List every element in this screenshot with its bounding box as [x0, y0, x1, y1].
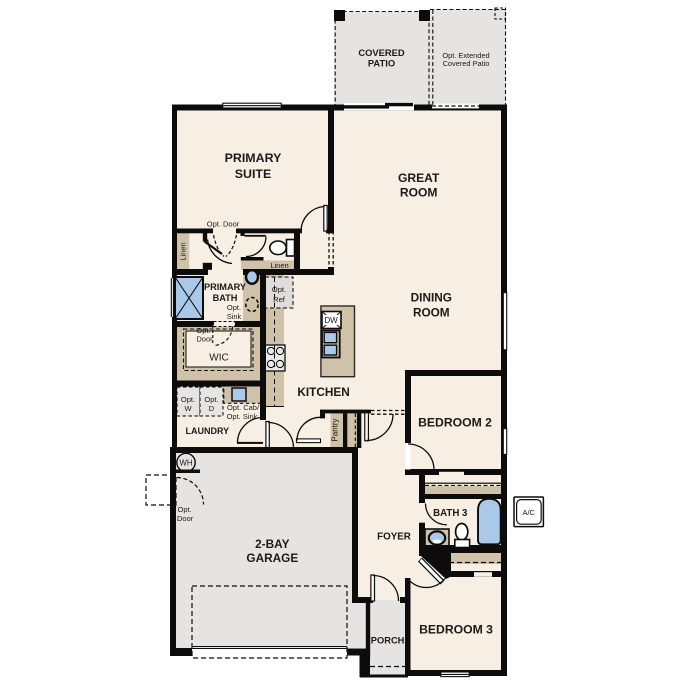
svg-text:PORCH: PORCH	[371, 636, 405, 646]
svg-text:BATH 3: BATH 3	[433, 508, 468, 519]
svg-text:Sink: Sink	[227, 312, 242, 321]
svg-text:GARAGE: GARAGE	[246, 551, 298, 565]
svg-text:Pantry: Pantry	[331, 418, 340, 441]
svg-text:ROOM: ROOM	[413, 305, 450, 319]
svg-text:Opt.: Opt.	[178, 505, 192, 514]
svg-text:Opt.: Opt.	[204, 395, 218, 404]
svg-text:SUITE: SUITE	[235, 167, 272, 181]
svg-text:PRIMARY: PRIMARY	[204, 282, 246, 292]
svg-text:DINING: DINING	[411, 290, 452, 304]
svg-text:BEDROOM 2: BEDROOM 2	[418, 416, 492, 430]
svg-text:FOYER: FOYER	[377, 532, 411, 543]
svg-text:Door: Door	[196, 335, 213, 344]
svg-text:GREAT: GREAT	[398, 171, 440, 185]
svg-text:Linen: Linen	[270, 261, 288, 270]
svg-text:Covered Patio: Covered Patio	[443, 59, 490, 68]
svg-text:Opt. Door: Opt. Door	[207, 220, 240, 229]
svg-text:BEDROOM 3: BEDROOM 3	[419, 623, 493, 637]
svg-text:LAUNDRY: LAUNDRY	[185, 426, 229, 436]
svg-text:BATH: BATH	[213, 293, 238, 303]
svg-text:Opt.: Opt.	[272, 285, 286, 294]
svg-text:Opt.: Opt.	[227, 303, 241, 312]
svg-text:Door: Door	[177, 514, 194, 523]
svg-text:W: W	[184, 404, 192, 413]
svg-text:WH: WH	[180, 459, 193, 468]
svg-text:Ref: Ref	[273, 295, 286, 304]
svg-text:DW: DW	[324, 316, 338, 325]
svg-text:Linen: Linen	[178, 242, 187, 260]
svg-text:Opt. Cab/: Opt. Cab/	[227, 403, 260, 412]
svg-text:Opt.: Opt.	[181, 395, 195, 404]
svg-text:KITCHEN: KITCHEN	[297, 385, 349, 399]
svg-text:D: D	[209, 404, 215, 413]
svg-text:WIC: WIC	[209, 353, 228, 364]
svg-text:ROOM: ROOM	[400, 185, 438, 199]
svg-text:PRIMARY: PRIMARY	[225, 151, 282, 165]
svg-text:A/C: A/C	[522, 508, 535, 517]
svg-text:PATIO: PATIO	[368, 57, 395, 68]
svg-text:2-BAY: 2-BAY	[255, 537, 289, 551]
svg-text:Opt. Sink: Opt. Sink	[227, 412, 258, 421]
